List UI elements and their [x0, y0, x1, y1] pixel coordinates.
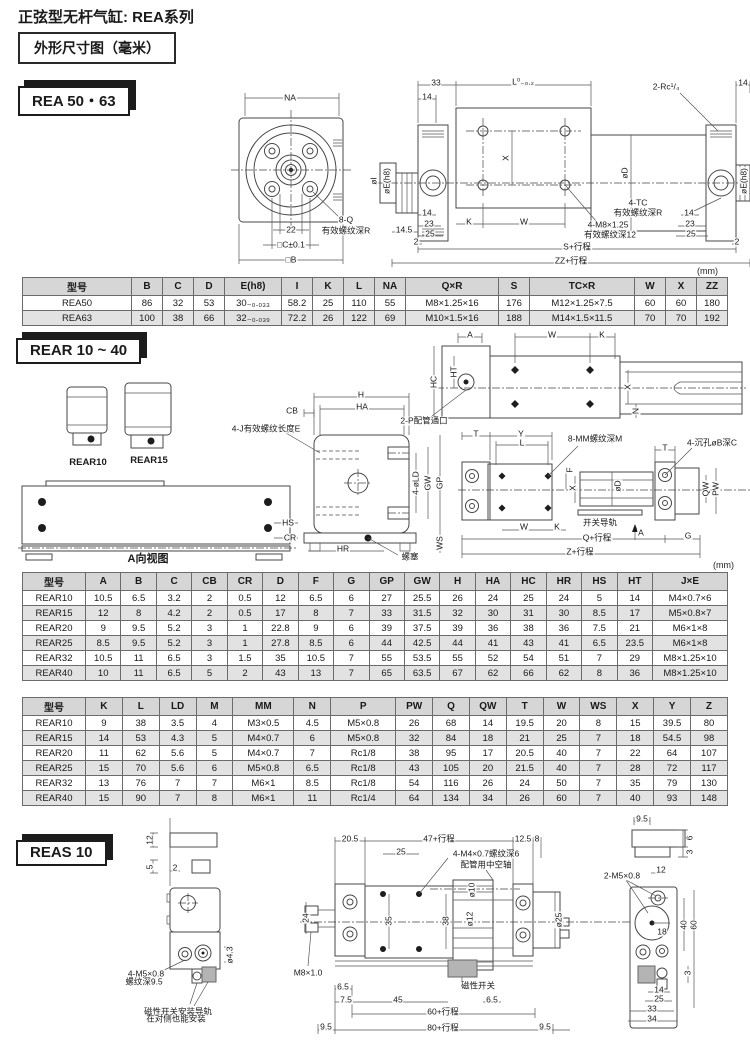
dim-label: 45: [392, 996, 403, 1005]
value-cell: 18: [469, 731, 506, 746]
dim-label: CR: [283, 534, 297, 543]
col-header: W: [635, 278, 666, 296]
value-cell: 69: [375, 311, 406, 326]
dim-label: 25: [395, 848, 406, 857]
dim-label: 4-øLD: [412, 470, 421, 496]
value-cell: 51: [546, 651, 581, 666]
value-cell: 100: [132, 311, 163, 326]
header-row: 型号KLLDMMMNPPWQQWTWWSXYZ: [23, 698, 728, 716]
value-cell: 67: [440, 666, 475, 681]
value-cell: 192: [697, 311, 728, 326]
value-cell: M6×1×8: [653, 621, 728, 636]
value-cell: 7: [580, 731, 617, 746]
value-cell: M5×0.8: [331, 731, 396, 746]
model-cell: REAR32: [23, 651, 86, 666]
value-cell: M4×0.7: [233, 746, 294, 761]
model-cell: REAR10: [23, 591, 86, 606]
dim-label: øE(h8): [740, 167, 749, 195]
value-cell: 8.5: [582, 606, 617, 621]
dim-label: 2: [734, 238, 741, 247]
dim-label: 4-M4×0.7螺纹深6: [452, 850, 520, 859]
value-cell: 7: [580, 791, 617, 806]
dim-label: 2-P配管通口: [399, 417, 448, 426]
value-cell: 27.8: [263, 636, 298, 651]
value-cell: 28: [617, 761, 654, 776]
dim-label: GP: [436, 476, 445, 490]
dim-label: ø25: [555, 912, 564, 929]
value-cell: 24: [506, 776, 543, 791]
value-cell: 64: [396, 791, 433, 806]
dimension-table: 型号ABCCBCRDFGGPGWHHAHCHRHSHTJ×EREAR1010.5…: [22, 572, 728, 681]
col-header: K: [86, 698, 123, 716]
value-cell: 72: [654, 761, 691, 776]
dim-label: HR: [336, 545, 350, 554]
dim-label: 20.5: [341, 835, 360, 844]
col-header: G: [334, 573, 369, 591]
value-cell: 80: [690, 716, 727, 731]
value-cell: 5: [192, 666, 227, 681]
value-cell: 9: [86, 716, 123, 731]
dim-label: 4-M8×1.25: [587, 221, 630, 230]
reas-left-view-svg: [150, 816, 315, 1038]
dim-label: 2-M5×0.8: [603, 872, 641, 881]
value-cell: 33: [369, 606, 404, 621]
model-cell: REAR40: [23, 666, 86, 681]
value-cell: 9: [86, 621, 121, 636]
value-cell: 110: [344, 296, 375, 311]
dim-label: 3: [684, 970, 693, 977]
value-cell: 7: [580, 746, 617, 761]
value-cell: 19.5: [506, 716, 543, 731]
value-cell: 70: [635, 311, 666, 326]
dim-label: 6.5: [485, 996, 499, 1005]
value-cell: 60: [543, 791, 580, 806]
dim-label: 47+行程: [422, 835, 455, 844]
value-cell: 6: [294, 731, 331, 746]
col-header: WS: [580, 698, 617, 716]
value-cell: 7: [334, 651, 369, 666]
value-cell: 15: [617, 716, 654, 731]
value-cell: 65: [369, 666, 404, 681]
value-cell: 7: [582, 651, 617, 666]
value-cell: 5: [582, 591, 617, 606]
col-header: B: [121, 573, 156, 591]
value-cell: 7: [580, 776, 617, 791]
value-cell: 43: [263, 666, 298, 681]
dim-label: 4-沉孔øB深C: [686, 439, 738, 448]
col-header: GW: [404, 573, 439, 591]
value-cell: 53.5: [404, 651, 439, 666]
rear-a-view-drawing: HSCRA向视图: [18, 476, 298, 568]
col-header: Y: [654, 698, 691, 716]
section-badge-reas: REAS 10: [16, 840, 107, 866]
dim-label: 9.5: [319, 1023, 333, 1032]
value-cell: 6.5: [121, 591, 156, 606]
value-cell: 8.5: [298, 636, 333, 651]
value-cell: 15: [86, 761, 123, 776]
value-cell: 52: [475, 651, 510, 666]
value-cell: 8: [298, 606, 333, 621]
model-cell: REAR25: [23, 761, 86, 776]
dimension-table: 型号KLLDMMMNPPWQQWTWWSXYZREAR109383.54M3×0…: [22, 697, 728, 806]
col-header: W: [543, 698, 580, 716]
value-cell: 116: [433, 776, 470, 791]
col-header: CR: [227, 573, 262, 591]
value-cell: 60: [666, 296, 697, 311]
value-cell: 7: [334, 606, 369, 621]
dim-label: 12: [655, 866, 666, 875]
value-cell: 122: [344, 311, 375, 326]
dim-label: 25: [685, 230, 696, 239]
value-cell: 31: [511, 606, 546, 621]
col-header: X: [617, 698, 654, 716]
dim-label: 8-Q: [338, 216, 354, 225]
dim-label: WS: [436, 535, 445, 551]
dim-label: 33: [430, 79, 441, 88]
value-cell: Rc1/8: [331, 776, 396, 791]
col-header: F: [298, 573, 333, 591]
dim-label: ø4.3: [226, 945, 235, 964]
col-header: HC: [511, 573, 546, 591]
table-row: REA63100386632₋₀.₀₃₉72.22612269M10×1.5×1…: [23, 311, 728, 326]
value-cell: 42.5: [404, 636, 439, 651]
col-header: A: [86, 573, 121, 591]
value-cell: M12×1.25×7.5: [530, 296, 635, 311]
value-cell: 3: [192, 636, 227, 651]
value-cell: 22: [617, 746, 654, 761]
dim-label: N: [632, 407, 641, 415]
dim-label: REAR10: [68, 458, 108, 468]
value-cell: 12: [263, 591, 298, 606]
col-header: Q×R: [406, 278, 499, 296]
value-cell: 41: [475, 636, 510, 651]
header-row: 型号BCDE(h8)IKLNAQ×RSTC×RWXZZ: [23, 278, 728, 296]
value-cell: 17: [263, 606, 298, 621]
value-cell: 117: [690, 761, 727, 776]
dim-label: 25: [653, 995, 664, 1004]
value-cell: 70: [122, 761, 159, 776]
dim-label: 23: [684, 220, 695, 229]
value-cell: 6.5: [298, 591, 333, 606]
value-cell: 53: [194, 296, 225, 311]
value-cell: M14×1.5×11.5: [530, 311, 635, 326]
dim-label: 14: [421, 209, 432, 218]
value-cell: 105: [433, 761, 470, 776]
value-cell: 25: [511, 591, 546, 606]
dim-label: GW: [424, 475, 433, 492]
table-row: REAR2011625.65M4×0.77Rc1/838951720.54072…: [23, 746, 728, 761]
value-cell: 14: [86, 731, 123, 746]
dim-label: 12: [146, 834, 155, 845]
model-cell: REAR10: [23, 716, 86, 731]
dim-label: 60: [690, 919, 699, 930]
value-cell: 7: [159, 791, 196, 806]
value-cell: 13: [298, 666, 333, 681]
value-cell: 134: [433, 791, 470, 806]
value-cell: M5×0.8×7: [653, 606, 728, 621]
value-cell: 18: [617, 731, 654, 746]
dim-label: 2: [172, 864, 179, 873]
value-cell: 11: [121, 666, 156, 681]
dim-label: 14.5: [395, 226, 414, 235]
value-cell: M8×1.25×10: [653, 666, 728, 681]
dim-label: ø12: [466, 911, 475, 928]
dim-label: 18: [656, 928, 667, 937]
value-cell: 0.5: [227, 606, 262, 621]
value-cell: 53: [122, 731, 159, 746]
value-cell: 176: [499, 296, 530, 311]
value-cell: 4.2: [156, 606, 191, 621]
value-cell: 38: [163, 311, 194, 326]
dim-label: 22: [285, 226, 296, 235]
value-cell: 44: [440, 636, 475, 651]
value-cell: 25.5: [404, 591, 439, 606]
value-cell: 90: [122, 791, 159, 806]
value-cell: 6: [196, 761, 233, 776]
dim-label: S+行程: [562, 243, 592, 252]
value-cell: 37.5: [404, 621, 439, 636]
value-cell: 54: [396, 776, 433, 791]
model-cell: REAR20: [23, 746, 86, 761]
dim-label: L: [519, 439, 526, 448]
value-cell: M3×0.5: [233, 716, 294, 731]
unit-note-1: (mm): [697, 266, 718, 276]
value-cell: 5: [196, 746, 233, 761]
dim-label: 24: [302, 912, 311, 923]
dim-label: 有效螺纹深R: [321, 227, 372, 236]
value-cell: 93: [654, 791, 691, 806]
value-cell: 32: [396, 731, 433, 746]
value-cell: 95: [433, 746, 470, 761]
dim-label: W: [519, 523, 529, 532]
value-cell: 14: [469, 716, 506, 731]
value-cell: 130: [690, 776, 727, 791]
dim-label: T: [661, 444, 668, 453]
value-cell: 14: [617, 591, 652, 606]
value-cell: 4: [196, 716, 233, 731]
col-header: NA: [375, 278, 406, 296]
value-cell: 64: [654, 746, 691, 761]
col-header: HR: [546, 573, 581, 591]
value-cell: 27: [369, 591, 404, 606]
model-cell: REA50: [23, 296, 132, 311]
value-cell: 148: [690, 791, 727, 806]
value-cell: M5×0.8: [233, 761, 294, 776]
col-header: D: [263, 573, 298, 591]
col-header: E(h8): [225, 278, 282, 296]
dim-label: K: [598, 331, 606, 340]
model-cell: REAR25: [23, 636, 86, 651]
value-cell: 5: [196, 731, 233, 746]
dim-label: 2-Rc¹/₄: [652, 83, 681, 92]
dim-label: 螺纹深9.5: [124, 978, 163, 987]
dim-label: 80+行程: [426, 1024, 459, 1033]
dim-label: 4-TC: [628, 199, 649, 208]
col-header: S: [499, 278, 530, 296]
value-cell: 25: [313, 296, 344, 311]
value-cell: 21: [506, 731, 543, 746]
value-cell: Rc1/8: [331, 746, 396, 761]
col-header: ZZ: [697, 278, 728, 296]
value-cell: 9: [298, 621, 333, 636]
header-row: 型号ABCCBCRDFGGPGWHHAHCHRHSHTJ×E: [23, 573, 728, 591]
value-cell: M6×1: [233, 791, 294, 806]
value-cell: 76: [122, 776, 159, 791]
rear-dimension-table-1: 型号ABCCBCRDFGGPGWHHAHCHRHSHTJ×EREAR1010.5…: [22, 572, 728, 681]
col-header: HS: [582, 573, 617, 591]
value-cell: 3: [192, 651, 227, 666]
dim-label: G: [684, 532, 693, 541]
value-cell: 5.6: [159, 746, 196, 761]
value-cell: 1: [227, 621, 262, 636]
model-cell: REAR15: [23, 731, 86, 746]
table-row: REAR151284.220.517873331.5323031308.517M…: [23, 606, 728, 621]
dim-label: A: [637, 529, 645, 538]
value-cell: 6.5: [582, 636, 617, 651]
value-cell: 4.3: [159, 731, 196, 746]
value-cell: 2: [192, 606, 227, 621]
col-header: GP: [369, 573, 404, 591]
value-cell: 11: [86, 746, 123, 761]
value-cell: 84: [433, 731, 470, 746]
table-row: REAR2099.55.23122.8963937.5393638367.521…: [23, 621, 728, 636]
value-cell: Rc1/8: [331, 761, 396, 776]
dim-label: øD: [614, 479, 623, 492]
dim-label: 34: [646, 1015, 657, 1024]
value-cell: 10.5: [86, 591, 121, 606]
value-cell: 24: [546, 591, 581, 606]
col-header: LD: [159, 698, 196, 716]
dim-label: 14: [737, 79, 748, 88]
value-cell: 39: [440, 621, 475, 636]
dim-label: REAR15: [129, 456, 169, 466]
dim-label: 23: [423, 220, 434, 229]
dim-label: 9.5: [538, 1023, 552, 1032]
col-header: B: [132, 278, 163, 296]
dim-label: NA: [283, 94, 297, 103]
value-cell: 12: [86, 606, 121, 621]
table-row: REAR32137677M6×18.5Rc1/85411626245073579…: [23, 776, 728, 791]
col-header: Q: [433, 698, 470, 716]
value-cell: 58.2: [282, 296, 313, 311]
dim-label: 磁性开关: [460, 982, 496, 991]
rear-bottom-view-drawing: TYL8-MM螺纹深MT4-沉孔øB深CFXøDQWPWWK开关导轨AGQ+行程…: [460, 426, 750, 572]
dim-label: W: [547, 331, 557, 340]
dim-label: Z+行程: [565, 548, 594, 557]
value-cell: 62: [475, 666, 510, 681]
dim-label: A向视图: [127, 554, 170, 566]
value-cell: M8×1.25×16: [406, 296, 499, 311]
value-cell: M6×1: [233, 776, 294, 791]
value-cell: 24: [475, 591, 510, 606]
col-header: K: [313, 278, 344, 296]
value-cell: 86: [132, 296, 163, 311]
dim-label: K: [553, 523, 561, 532]
value-cell: 10: [86, 666, 121, 681]
value-cell: 107: [690, 746, 727, 761]
value-cell: Rc1/4: [331, 791, 396, 806]
value-cell: 9.5: [121, 621, 156, 636]
dim-label: HA: [355, 403, 369, 412]
dim-label: L⁰₋₀.₂: [511, 78, 535, 87]
value-cell: 6: [334, 591, 369, 606]
col-header: N: [294, 698, 331, 716]
dim-label: ø10: [468, 882, 477, 899]
value-cell: M6×1×8: [653, 636, 728, 651]
value-cell: 30: [546, 606, 581, 621]
value-cell: 21: [617, 621, 652, 636]
value-cell: 7: [159, 776, 196, 791]
value-cell: 7: [196, 776, 233, 791]
dim-label: CB: [285, 407, 299, 416]
dim-label: A: [466, 331, 474, 340]
catalog-page: { "page": { "title": "正弦型无杆气缸: REA系列", "…: [0, 0, 750, 1040]
value-cell: 43: [396, 761, 433, 776]
value-cell: 25: [543, 731, 580, 746]
col-header: D: [194, 278, 225, 296]
col-header: HT: [617, 573, 652, 591]
value-cell: 8.5: [294, 776, 331, 791]
value-cell: 9.5: [121, 636, 156, 651]
value-cell: 55: [369, 651, 404, 666]
value-cell: 30₋₀.₀₃₃: [225, 296, 282, 311]
value-cell: 3: [192, 621, 227, 636]
value-cell: 70: [666, 311, 697, 326]
value-cell: 6: [334, 636, 369, 651]
dim-label: 4-J有效螺纹长度E: [231, 425, 301, 434]
dim-label: PW: [712, 481, 721, 497]
value-cell: 36: [546, 621, 581, 636]
value-cell: 180: [697, 296, 728, 311]
value-cell: 32: [163, 296, 194, 311]
value-cell: 188: [499, 311, 530, 326]
value-cell: 36: [617, 666, 652, 681]
dim-label: □B: [285, 256, 298, 265]
model-cell: REAR20: [23, 621, 86, 636]
dim-label: HC: [430, 375, 439, 389]
value-cell: 60: [635, 296, 666, 311]
value-cell: 72.2: [282, 311, 313, 326]
col-header: I: [282, 278, 313, 296]
value-cell: 62: [546, 666, 581, 681]
section-badge-rea: REA 50・63: [18, 86, 130, 116]
col-header: TC×R: [530, 278, 635, 296]
col-header: L: [344, 278, 375, 296]
value-cell: 1: [227, 636, 262, 651]
dim-label: øE(h8): [383, 167, 392, 195]
value-cell: 50: [543, 776, 580, 791]
table-row: REAR40159078M6×111Rc1/464134342660740931…: [23, 791, 728, 806]
col-header: Z: [690, 698, 727, 716]
value-cell: 26: [396, 716, 433, 731]
reas-left-view-drawing: 1252ø4.34-M5×0.8螺纹深9.5磁性开关安装导轨在对侧也能安装: [150, 816, 315, 1038]
value-cell: 8.5: [86, 636, 121, 651]
dim-label: 6: [686, 835, 695, 842]
dim-label: □C±0.1: [276, 241, 306, 250]
value-cell: 13: [86, 776, 123, 791]
table-row: REAR109383.54M3×0.54.5M5×0.826681419.520…: [23, 716, 728, 731]
page-title: 正弦型无杆气缸: REA系列: [18, 6, 194, 27]
value-cell: 26: [469, 776, 506, 791]
value-cell: 10.5: [298, 651, 333, 666]
dim-label: W: [519, 218, 529, 227]
frame-title: 外形尺寸图（毫米）: [18, 32, 176, 64]
value-cell: 0.5: [227, 591, 262, 606]
value-cell: 6.5: [294, 761, 331, 776]
value-cell: 36: [475, 621, 510, 636]
dim-label: 25: [424, 230, 435, 239]
section-badge-rear: REAR 10 ~ 40: [16, 338, 141, 364]
